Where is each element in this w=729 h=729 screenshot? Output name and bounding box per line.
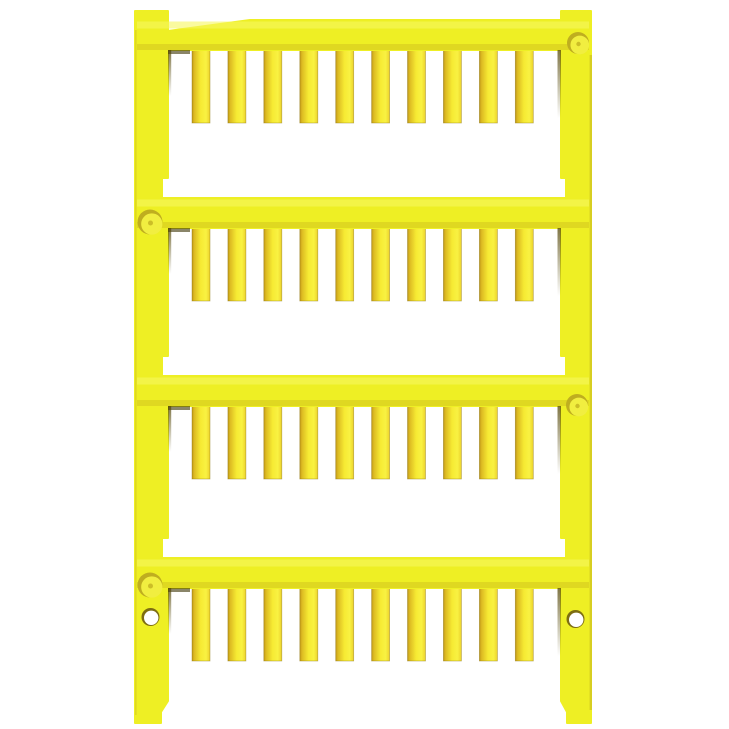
marker-tag <box>372 48 390 123</box>
inner-wall-shadow-left <box>168 406 171 452</box>
right-rail-edge-shade <box>590 55 592 710</box>
marker-tag <box>300 586 318 661</box>
mounting-hole <box>144 611 158 625</box>
inner-wall-shadow-right <box>558 228 562 296</box>
marker-tag <box>408 404 426 479</box>
dimple-center-dot <box>575 404 579 408</box>
marker-tag <box>264 226 282 301</box>
marker-tag <box>479 586 497 661</box>
junction-shadow <box>168 228 190 232</box>
marker-tag <box>515 586 533 661</box>
marker-tag <box>228 404 246 479</box>
rail-top-highlight <box>137 378 589 385</box>
marker-tag <box>336 48 354 123</box>
left-rail-edge-shade <box>135 30 137 715</box>
marker-tag <box>479 404 497 479</box>
dimple-center-dot <box>148 584 153 589</box>
rail-bottom-shade <box>137 582 589 588</box>
marker-tag <box>479 226 497 301</box>
junction-shadow <box>168 406 190 410</box>
marker-tag <box>408 586 426 661</box>
wire-marker-card-image: Yellow plastic wire marker card: ladder … <box>0 0 729 729</box>
marker-tag <box>192 404 210 479</box>
inner-wall-shadow-right <box>558 50 562 118</box>
marker-tag <box>443 586 461 661</box>
product-image-canvas: Yellow plastic wire marker card: ladder … <box>0 0 729 729</box>
marker-tag <box>228 48 246 123</box>
inner-wall-shadow-left <box>168 228 171 274</box>
marker-tag <box>264 48 282 123</box>
rail-bottom-shade <box>137 400 589 406</box>
marker-tag <box>336 226 354 301</box>
marker-tag <box>192 48 210 123</box>
marker-tag <box>515 404 533 479</box>
rail-top-highlight <box>137 560 589 567</box>
junction-shadow <box>168 588 190 592</box>
marker-tag <box>372 226 390 301</box>
marker-tag <box>300 404 318 479</box>
marker-tag <box>443 48 461 123</box>
inner-wall-shadow-right <box>558 406 562 474</box>
marker-tag <box>336 586 354 661</box>
marker-tag <box>300 226 318 301</box>
rail-bottom-shade <box>137 44 589 50</box>
marker-tag <box>192 226 210 301</box>
marker-tag <box>300 48 318 123</box>
marker-tag <box>372 404 390 479</box>
marker-tag <box>443 404 461 479</box>
marker-tag <box>443 226 461 301</box>
rail-top-highlight <box>137 200 589 207</box>
marker-tag <box>408 48 426 123</box>
marker-tag <box>228 586 246 661</box>
junction-shadow <box>168 50 190 54</box>
marker-tag <box>515 48 533 123</box>
dimple-center-dot <box>148 221 153 226</box>
inner-wall-shadow-right <box>558 588 562 656</box>
marker-tag <box>264 586 282 661</box>
marker-tag <box>372 586 390 661</box>
inner-wall-shadow-left <box>168 588 171 634</box>
marker-tag <box>479 48 497 123</box>
marker-tag <box>408 226 426 301</box>
rail-top-highlight <box>137 22 589 29</box>
mounting-hole <box>569 613 583 627</box>
marker-tag <box>228 226 246 301</box>
marker-tag <box>192 586 210 661</box>
dimple-center-dot <box>576 42 580 46</box>
rail-bottom-shade <box>137 222 589 228</box>
inner-wall-shadow-left <box>168 50 171 96</box>
marker-tag <box>336 404 354 479</box>
marker-tag <box>515 226 533 301</box>
marker-tag <box>264 404 282 479</box>
